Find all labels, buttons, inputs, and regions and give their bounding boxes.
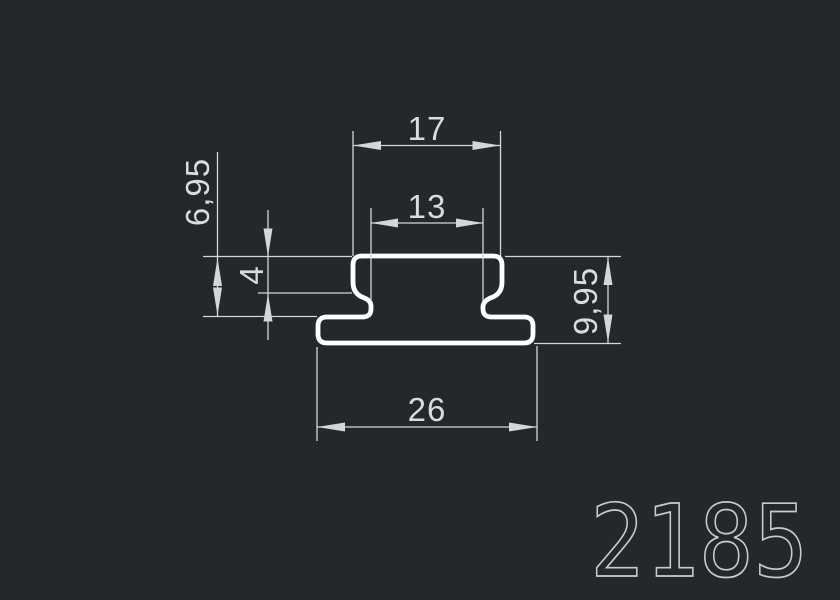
dimension-value-neck-width: 13 (408, 188, 447, 225)
arrowhead-up (213, 258, 222, 286)
arrowhead-up (264, 294, 273, 322)
arrowhead-left (317, 423, 345, 432)
arrowhead-down (264, 229, 273, 257)
dimension-value-base-width: 26 (408, 391, 447, 428)
arrowhead-left (371, 219, 398, 228)
profile-outline (318, 256, 533, 343)
dimension-value-cap-thickness: 4 (233, 265, 270, 284)
arrowhead-right (509, 423, 537, 432)
dimension-cap-width: 17 (353, 110, 501, 256)
arrowhead-up (604, 257, 613, 285)
arrowhead-left (353, 141, 381, 150)
arrowhead-down (604, 315, 613, 343)
dimension-value-upper-height: 6,95 (179, 158, 216, 226)
dimension-neck-width: 13 (371, 188, 483, 301)
cad-drawing-canvas: 17 13 26 6,95 (0, 0, 840, 600)
dimension-value-total-height: 9,95 (567, 267, 604, 335)
part-number: 2185 (590, 483, 808, 600)
arrowhead-down (213, 288, 222, 316)
dimension-base-width: 26 (317, 346, 537, 441)
drawing-svg: 17 13 26 6,95 (0, 0, 840, 600)
dimension-value-cap-width: 17 (408, 110, 447, 147)
dimension-total-height: 9,95 (505, 256, 621, 344)
arrowhead-right (473, 141, 501, 150)
profile-path (318, 256, 533, 343)
dimension-cap-thickness: 4 (233, 210, 352, 340)
arrowhead-right (456, 219, 483, 228)
